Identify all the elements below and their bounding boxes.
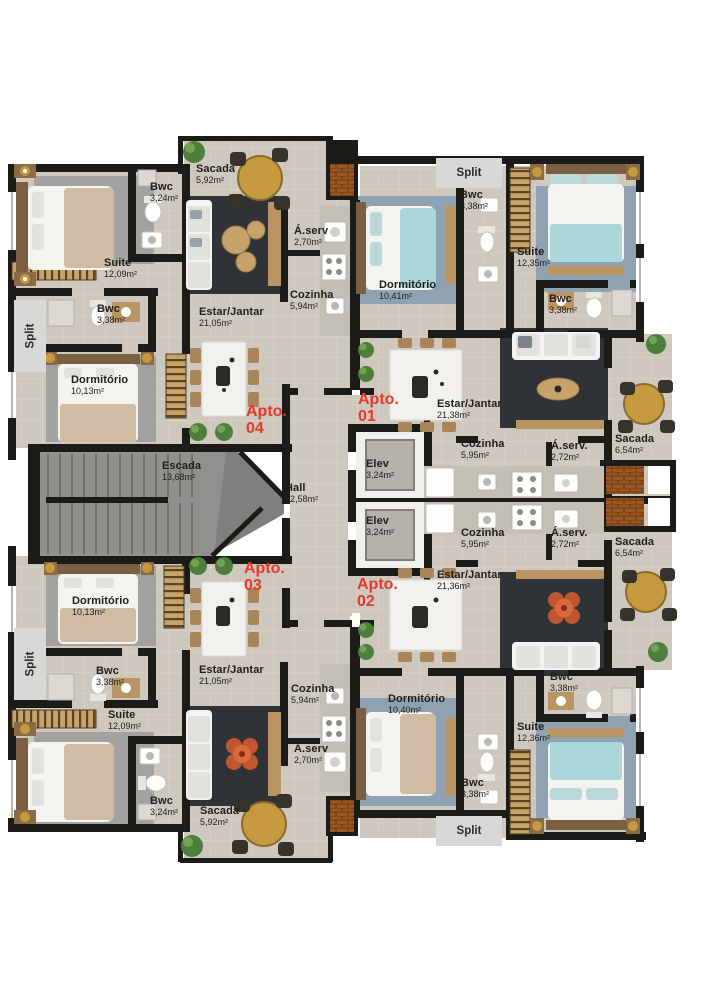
floor-plan-rendering [0, 0, 706, 1000]
stair-room [38, 452, 286, 556]
floor-plan-page: Sacada5,92m²Bwc3,24m²Suite12,09m²Á.serv2… [0, 0, 706, 1000]
elevators [348, 424, 432, 576]
